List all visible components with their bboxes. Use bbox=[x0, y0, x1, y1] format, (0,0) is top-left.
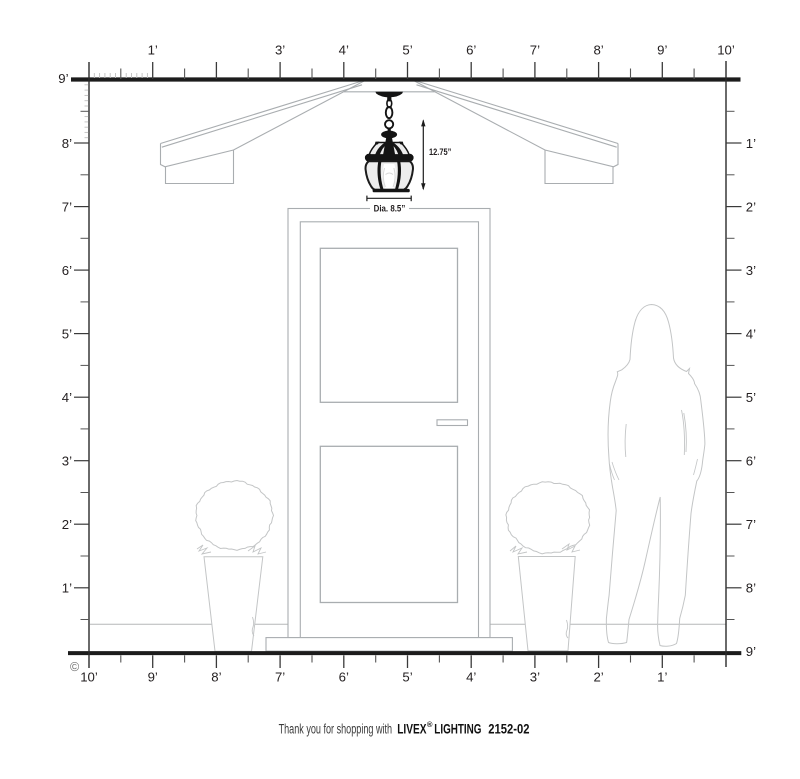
svg-text:6’: 6’ bbox=[62, 263, 72, 278]
svg-text:©: © bbox=[70, 660, 80, 674]
svg-text:6’: 6’ bbox=[746, 454, 756, 469]
svg-text:8’: 8’ bbox=[62, 136, 72, 151]
svg-text:4’: 4’ bbox=[339, 43, 349, 58]
svg-text:8’: 8’ bbox=[211, 669, 221, 684]
svg-text:9’: 9’ bbox=[657, 43, 667, 58]
svg-text:7’: 7’ bbox=[530, 43, 540, 58]
svg-text:6’: 6’ bbox=[339, 669, 349, 684]
svg-text:5’: 5’ bbox=[62, 326, 72, 341]
svg-text:7’: 7’ bbox=[275, 669, 285, 684]
svg-text:5’: 5’ bbox=[402, 669, 412, 684]
svg-text:2’: 2’ bbox=[746, 199, 756, 214]
svg-text:1’: 1’ bbox=[62, 581, 72, 596]
svg-text:Dia. 8.5”: Dia. 8.5” bbox=[374, 204, 406, 215]
svg-text:5’: 5’ bbox=[402, 43, 412, 58]
svg-text:3’: 3’ bbox=[62, 454, 72, 469]
svg-text:Thank you for shopping with: Thank you for shopping with bbox=[279, 721, 393, 736]
svg-text:9’: 9’ bbox=[148, 669, 158, 684]
svg-text:2’: 2’ bbox=[593, 669, 603, 684]
svg-text:LIGHTING: LIGHTING bbox=[434, 720, 481, 736]
svg-text:3’: 3’ bbox=[530, 669, 540, 684]
svg-text:4’: 4’ bbox=[62, 390, 72, 405]
svg-text:5’: 5’ bbox=[746, 390, 756, 405]
svg-text:8’: 8’ bbox=[593, 43, 603, 58]
svg-text:7’: 7’ bbox=[746, 517, 756, 532]
svg-text:4’: 4’ bbox=[746, 326, 756, 341]
svg-text:1’: 1’ bbox=[657, 669, 667, 684]
svg-text:6’: 6’ bbox=[466, 43, 476, 58]
svg-text:8’: 8’ bbox=[746, 581, 756, 596]
svg-text:7’: 7’ bbox=[62, 199, 72, 214]
svg-text:9’: 9’ bbox=[58, 71, 68, 86]
svg-text:4’: 4’ bbox=[466, 669, 476, 684]
svg-text:2’: 2’ bbox=[62, 517, 72, 532]
svg-text:1’: 1’ bbox=[148, 43, 158, 58]
svg-text:1’: 1’ bbox=[746, 136, 756, 151]
svg-text:3’: 3’ bbox=[746, 263, 756, 278]
svg-text:®: ® bbox=[427, 720, 433, 729]
svg-text:12.75”: 12.75” bbox=[429, 147, 451, 157]
svg-text:2152-02: 2152-02 bbox=[488, 720, 529, 736]
svg-text:10’: 10’ bbox=[717, 43, 735, 58]
svg-text:9’: 9’ bbox=[746, 644, 756, 659]
svg-text:3’: 3’ bbox=[275, 43, 285, 58]
svg-text:LIVEX: LIVEX bbox=[397, 720, 427, 736]
svg-text:10’: 10’ bbox=[80, 669, 98, 684]
